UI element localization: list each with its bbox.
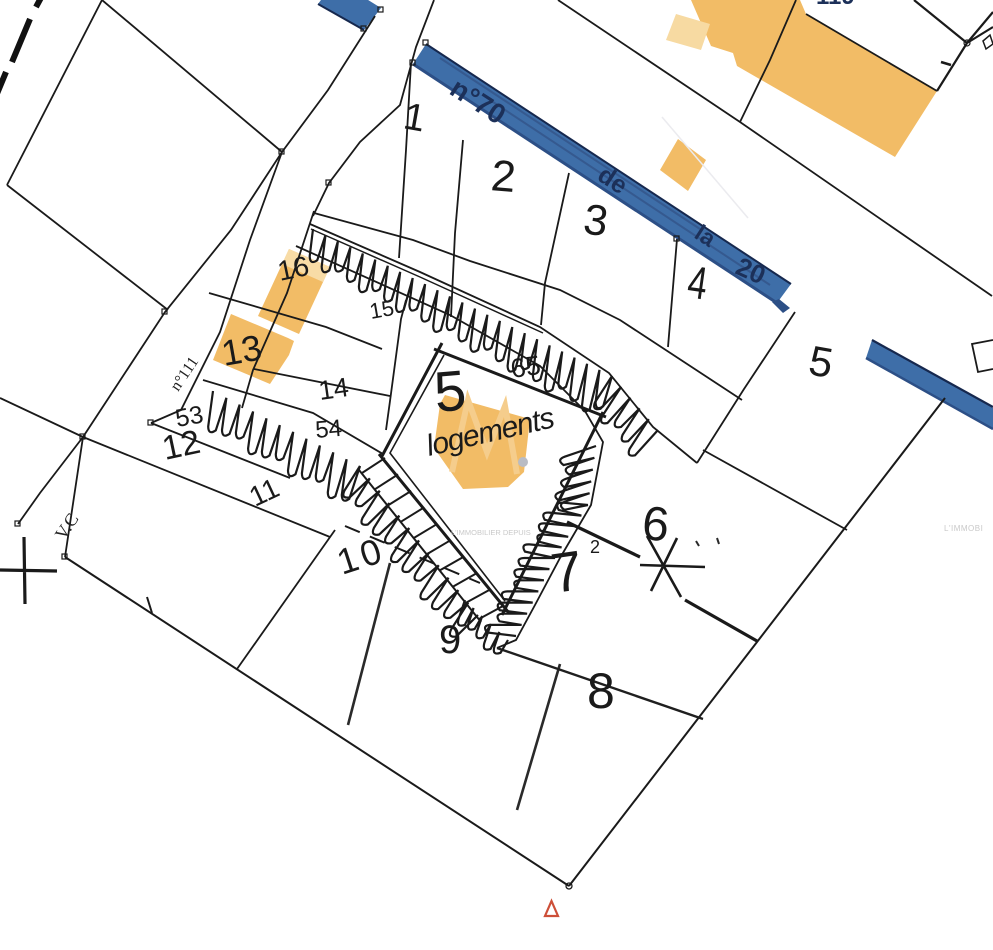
svg-text:8: 8 xyxy=(587,663,615,719)
svg-text:L'IMMOBI: L'IMMOBI xyxy=(944,524,983,533)
svg-text:65: 65 xyxy=(509,350,543,384)
svg-text:2: 2 xyxy=(590,537,600,557)
svg-text:2: 2 xyxy=(489,151,518,202)
svg-text:53: 53 xyxy=(173,401,205,433)
svg-text:15: 15 xyxy=(368,295,396,324)
svg-text:14: 14 xyxy=(317,372,351,406)
svg-text:13: 13 xyxy=(218,327,265,374)
svg-text:5: 5 xyxy=(432,358,469,425)
svg-text:9: 9 xyxy=(439,618,461,662)
svg-text:6: 6 xyxy=(640,497,671,552)
svg-text:16: 16 xyxy=(275,250,312,287)
svg-text:54: 54 xyxy=(314,415,343,444)
svg-text:L'IMMOBILIER DEPUIS: L'IMMOBILIER DEPUIS xyxy=(451,528,531,537)
svg-text:119: 119 xyxy=(816,0,855,10)
